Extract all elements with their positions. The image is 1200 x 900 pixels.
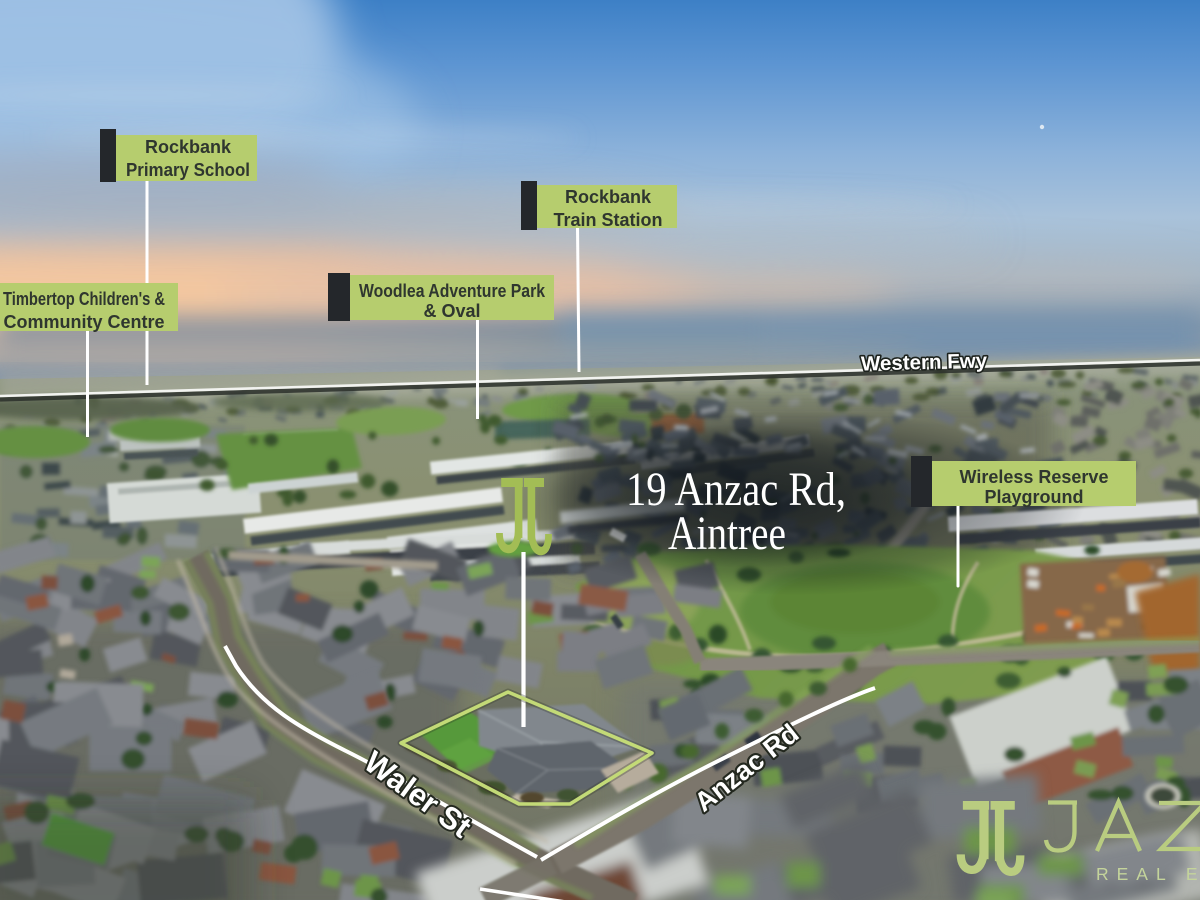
svg-text:Woodlea Adventure Park: Woodlea Adventure Park [359,281,546,301]
svg-text:Timbertop Children's &: Timbertop Children's & [3,289,165,309]
svg-text:Train Station: Train Station [553,210,662,230]
svg-text:Playground: Playground [984,487,1083,507]
svg-text:& Oval: & Oval [423,301,480,321]
svg-text:Rockbank: Rockbank [145,137,232,157]
svg-text:Wireless Reserve: Wireless Reserve [960,467,1109,487]
svg-text:Primary School: Primary School [126,160,250,180]
svg-text:Aintree: Aintree [668,507,786,560]
svg-text:REAL ES: REAL ES [1096,864,1200,884]
svg-text:Rockbank: Rockbank [565,187,652,207]
svg-text:Community Centre: Community Centre [3,312,164,332]
svg-text:Western Fwy: Western Fwy [861,349,988,375]
